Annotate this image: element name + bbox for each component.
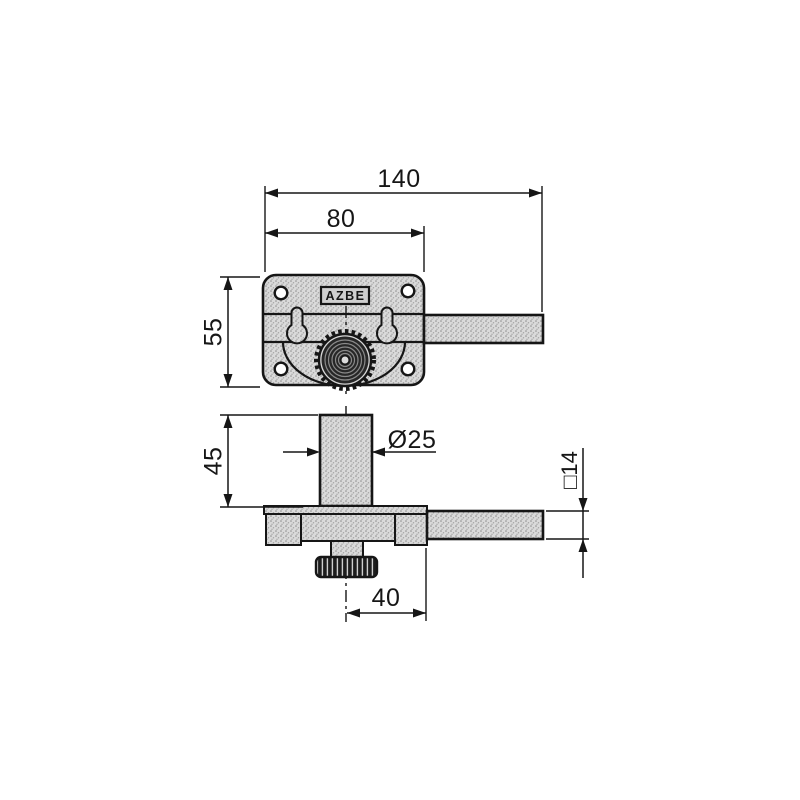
- top-view: 140 80 55: [200, 165, 544, 398]
- dimension-bolt-section: □14: [546, 448, 589, 578]
- dimension-label-d25: Ø25: [388, 426, 437, 454]
- drawing-page: 140 80 55: [0, 0, 800, 800]
- mounting-hole: [402, 363, 415, 376]
- dimension-cylinder-height: 45: [200, 415, 319, 507]
- mounting-hole: [402, 285, 415, 298]
- case-block-left: [266, 514, 301, 545]
- technical-drawing: 140 80 55: [0, 0, 800, 800]
- knob-center: [341, 356, 349, 364]
- bolt: [424, 315, 543, 343]
- dimension-label-sq14: □14: [557, 451, 582, 489]
- arrowhead: [579, 498, 588, 511]
- knob-stem: [331, 541, 363, 557]
- bolt-guide-block: [395, 514, 427, 545]
- dimension-label-55: 55: [200, 318, 228, 347]
- side-view: 45 Ø25 □14 40: [200, 406, 590, 622]
- dimension-body-height: 55: [200, 277, 261, 387]
- cylinder: [320, 415, 372, 506]
- arrowhead: [307, 448, 320, 457]
- brand-plate: AZBE: [321, 287, 369, 304]
- arrowhead: [579, 539, 588, 552]
- mounting-hole: [275, 363, 288, 376]
- knob-side: [316, 557, 377, 577]
- dimension-body-width: 80: [265, 205, 424, 272]
- case-block-middle: [301, 514, 395, 541]
- arrowhead: [372, 448, 385, 457]
- mounting-hole: [275, 287, 288, 300]
- dimension-label-80: 80: [327, 205, 356, 233]
- dimension-label-45: 45: [200, 447, 228, 476]
- bolt-bar: [427, 511, 543, 539]
- dimension-label-40: 40: [372, 584, 401, 612]
- dimension-label-140: 140: [377, 165, 420, 193]
- brand-label: AZBE: [325, 289, 365, 303]
